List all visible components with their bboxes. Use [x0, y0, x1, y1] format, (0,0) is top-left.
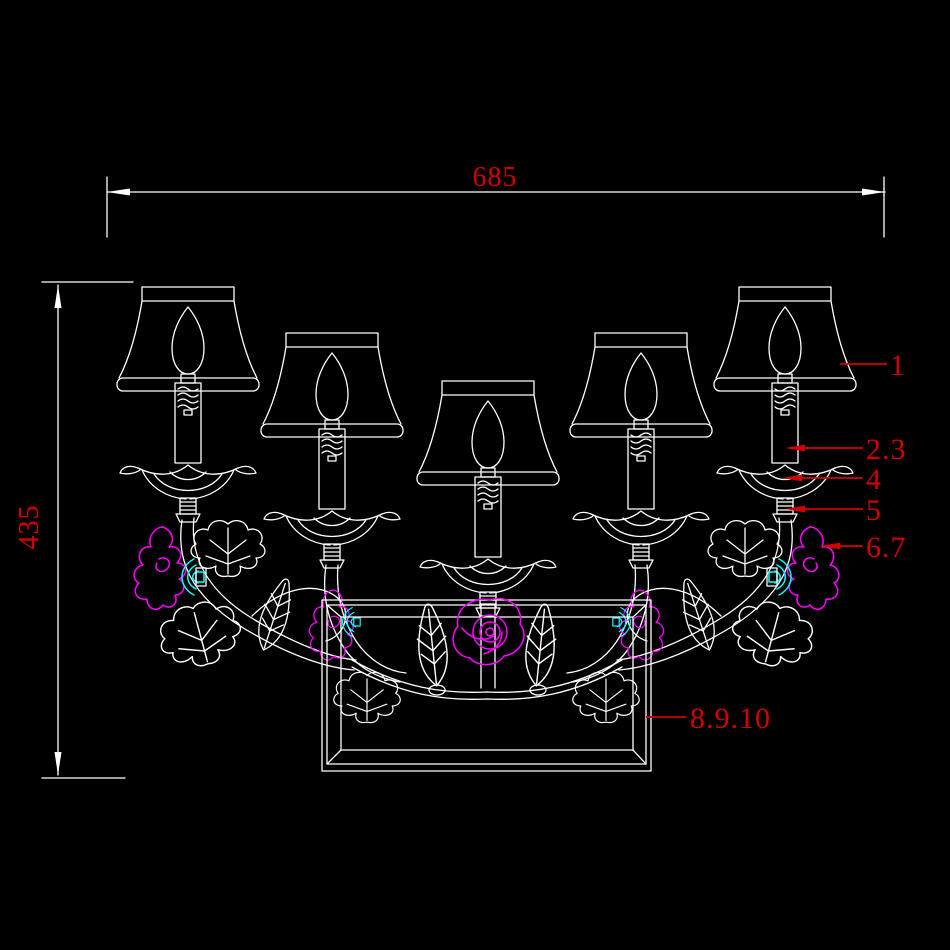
- sconce-left-half: [117, 287, 451, 723]
- sconce-right-half: [522, 287, 856, 723]
- lamp-shade: [417, 381, 559, 557]
- callout-4-label: 4: [866, 463, 882, 496]
- dimension-width-label: 685: [473, 162, 518, 193]
- cad-viewport: 685 435 1 2.3 4 5 6.7 8.9.10: [0, 0, 950, 950]
- callout-5: 5: [785, 494, 882, 527]
- callout-4: 4: [782, 463, 882, 496]
- dimension-width: 685: [107, 162, 885, 237]
- callout-6-7-label: 6.7: [866, 531, 907, 564]
- dimension-height: 435: [14, 282, 133, 778]
- callout-2-3: 2.3: [785, 433, 907, 466]
- callout-8-9-10: 8.9.10: [646, 702, 771, 735]
- dimension-height-label: 435: [14, 505, 45, 550]
- callout-1: 1: [840, 349, 906, 382]
- sconce-centre: [322, 381, 651, 771]
- callout-1-label: 1: [890, 349, 906, 382]
- cad-canvas: 685 435 1 2.3 4 5 6.7 8.9.10: [0, 0, 950, 950]
- backplate-frame: [322, 600, 651, 771]
- callout-5-label: 5: [866, 494, 882, 527]
- callout-8-9-10-label: 8.9.10: [690, 702, 771, 735]
- callout-2-3-label: 2.3: [866, 433, 907, 466]
- bobeche-cup: [420, 559, 556, 616]
